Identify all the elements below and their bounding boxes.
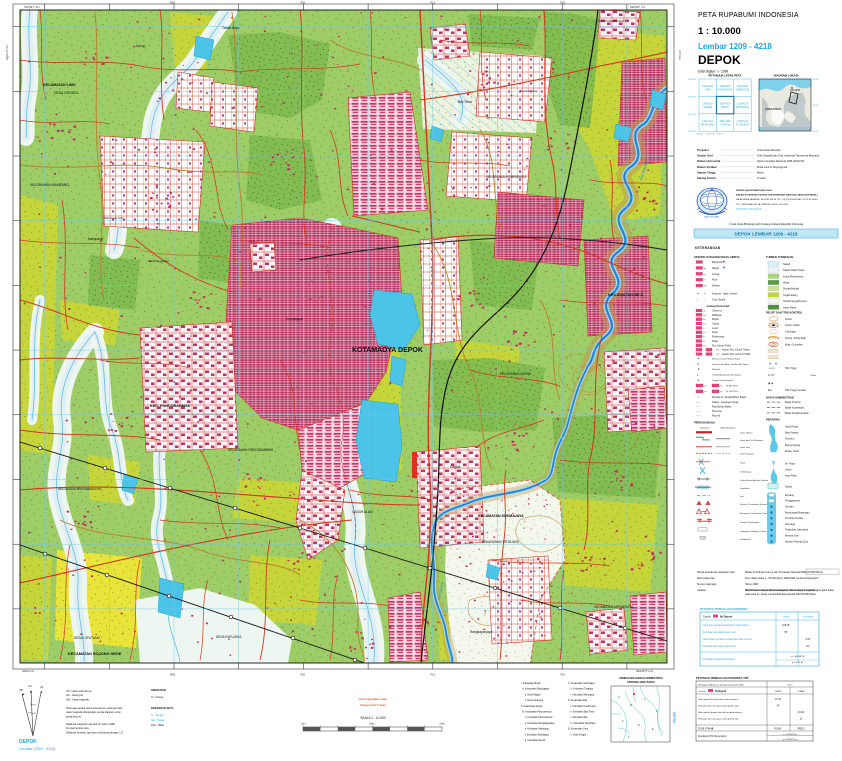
svg-text:—·—: —·—: [696, 401, 702, 404]
svg-text:D. Kecamatan Beji: D. Kecamatan Beji: [568, 699, 588, 702]
svg-text:Wk: Wk: [703, 315, 706, 317]
svg-text:Curug: Curug: [136, 44, 145, 48]
svg-text:◾: ◾: [697, 368, 700, 371]
svg-text:Ni Depok: Ni Depok: [720, 615, 733, 619]
svg-text:Depokjaya: Depokjaya: [286, 317, 303, 321]
svg-text:702: 702: [560, 1, 565, 5]
svg-text:BATAS ADMINISTRASI: BATAS ADMINISTRASI: [766, 395, 794, 399]
svg-text:Badan Koordinasi Survey dan Pe: Badan Koordinasi Survey dan Pemetaan Nas…: [745, 571, 823, 574]
svg-text:Pelabuhan Samudera: Pelabuhan Samudera: [785, 529, 809, 532]
svg-text:DEPOK: DEPOK: [698, 53, 741, 67]
svg-text:Puskesmas: Puskesmas: [712, 336, 725, 339]
svg-text:Jalan dgn Pal Kilometer: Jalan dgn Pal Kilometer: [740, 439, 763, 442]
svg-text:KETERANGAN: KETERANGAN: [695, 246, 721, 250]
svg-text:Camat: Camat: [712, 323, 719, 326]
svg-text:510497 mU: 510497 mU: [24, 5, 40, 9]
svg-text:pusat peta ini: pusat peta ini: [66, 715, 81, 718]
svg-text:06°15'00": 06°15'00": [688, 79, 697, 81]
svg-text:Pos: Pos: [716, 350, 719, 352]
svg-text:Mamuang Hilir: Mamuang Hilir: [104, 216, 123, 220]
svg-text:KELURAHAN MAMPANG: KELURAHAN MAMPANG: [30, 183, 69, 187]
svg-text:DEPOK LEMBAR 1209 - 4218: DEPOK LEMBAR 1209 - 4218: [734, 232, 798, 237]
svg-text:Tahun 1996: Tahun 1996: [745, 583, 759, 586]
svg-text:c. Kelurahan Pancoranmas: c. Kelurahan Pancoranmas: [521, 716, 553, 719]
svg-text:Kantor Pos, Kantor Telpon: Kantor Pos, Kantor Telpon: [722, 349, 751, 352]
svg-text:Pondok Cina: Pondok Cina: [520, 89, 538, 93]
svg-text:Tambangan: Tambangan: [740, 471, 752, 473]
svg-text:Dermaga: Dermaga: [785, 523, 796, 526]
svg-text:Meter: Meter: [757, 170, 764, 174]
svg-text:06°00': 06°00': [813, 79, 819, 81]
svg-text:Jalan Utama: Jalan Utama: [740, 431, 753, 434]
svg-text:106 48': 106 48': [782, 625, 790, 627]
svg-text:TanahKosong/Rumput: TanahKosong/Rumput: [783, 300, 807, 303]
svg-text:Kantor PLN, Kantor PDAM: Kantor PLN, Kantor PDAM: [722, 353, 750, 356]
svg-text:PETUNJUK PEMBACAAN KOODINAT UT: PETUNJUK PEMBACAAN KOODINAT UTM: [696, 676, 748, 680]
svg-text:1 km: 1 km: [300, 723, 305, 726]
svg-text:Lori: Lori: [740, 495, 744, 498]
svg-text:Hutan: Hutan: [783, 282, 790, 285]
svg-text:Stasiun, Perhentian Kereta Api: Stasiun, Perhentian Kereta Api: [740, 503, 770, 506]
svg-text:KECAMATAN LIMO: KECAMATAN LIMO: [43, 83, 76, 87]
svg-text:Wh: Wh: [704, 286, 707, 288]
svg-text:Ltu: Ltu: [704, 390, 707, 393]
svg-text:106°45' · 106°52'30" · 106: 106°45' · 106°52'30" · 106°56': [697, 134, 724, 136]
svg-text:Perkiraan dari selang satu men: Perkiraan dari selang satu menit: [703, 645, 736, 648]
svg-text:Foto Udara skala 1 : 30.000 ta: Foto Udara skala 1 : 30.000 tahun 1993/1…: [745, 577, 819, 580]
svg-text:TIMUR: TIMUR: [775, 691, 782, 693]
svg-text:x = 0701435 m: x = 0701435 m: [783, 734, 798, 736]
svg-text:— —: — —: [696, 415, 702, 418]
svg-text:DESA RATUJAYA: DESA RATUJAYA: [216, 635, 242, 639]
svg-text:LIMO: LIMO: [705, 90, 711, 92]
svg-text:Grid sebelah kiri dari titik t: Grid sebelah kiri dari titik tersebut te…: [698, 698, 739, 701]
svg-text:Pipa Air: Pipa Air: [712, 415, 720, 418]
svg-text:CIMANGGIS: CIMANGGIS: [736, 89, 750, 92]
svg-text:Kampungsahan: Kampungsahan: [148, 259, 169, 263]
svg-text:UG : Utara grid: UG : Utara grid: [66, 694, 83, 697]
svg-text:Kontur: Kontur: [785, 318, 792, 321]
svg-text:Transverse Mercator: Transverse Mercator: [757, 148, 781, 152]
svg-text:10 m: 10 m: [788, 685, 793, 687]
svg-text:701: 701: [430, 1, 435, 5]
svg-text:1209-4216: 1209-4216: [737, 121, 749, 123]
svg-text:Kebun/Perkebunan: Kebun/Perkebunan: [783, 275, 804, 278]
svg-text:UM : Utara magnetik: UM : Utara magnetik: [66, 698, 90, 701]
svg-text:06°15'00": 06°15'00": [688, 114, 697, 116]
svg-text:Batas Desa/Kelurahan: Batas Desa/Kelurahan: [785, 412, 810, 415]
svg-text:▣ ◉: ▣ ◉: [768, 382, 774, 385]
svg-text:✝: ✝: [704, 293, 706, 296]
svg-text:utara magnetik ditunjukkan sec: utara magnetik ditunjukkan secara diagra…: [66, 711, 121, 714]
svg-text:A. Kecamatan Bojonggede: A. Kecamatan Bojonggede: [521, 688, 550, 691]
svg-text:KEL PONDOKCINA: KEL PONDOKCINA: [598, 19, 625, 23]
svg-text:Tempat/Bangunan Bersejarah: Tempat/Bangunan Bersejarah: [712, 374, 742, 377]
svg-text:Selang Kontur: Selang Kontur: [697, 176, 717, 180]
svg-text:PB212: PB212: [798, 729, 806, 731]
svg-text:Jalan Kereta Api dan Stasiun: Jalan Kereta Api dan Stasiun: [740, 479, 769, 482]
svg-text:Δᵀ Δᴾ: Δᵀ Δᴾ: [768, 373, 774, 377]
svg-text:Gardulistrik: Gardulistrik: [740, 538, 752, 541]
svg-text:KELURAHAN PANCORANMAS: KELURAHAN PANCORANMAS: [228, 448, 273, 452]
svg-text:Terusan: Terusan: [785, 506, 794, 509]
svg-text:Bupati: Bupati: [712, 318, 719, 321]
svg-text:Arah Aliran: Arah Aliran: [785, 475, 797, 478]
svg-text:JAWA BARAT: JAWA BARAT: [765, 108, 782, 111]
svg-text:DEPOK: DEPOK: [721, 107, 730, 109]
svg-text:KELURAHAN BANJARWALUYA: KELURAHAN BANJARWALUYA: [58, 487, 101, 491]
svg-text:Ci : Sungai: Ci : Sungai: [151, 714, 164, 717]
svg-text:i. Kelurahan Mekarjaya: i. Kelurahan Mekarjaya: [568, 693, 595, 696]
svg-text:Koordinat geografi titik terse: Koordinat geografi titik tersebut: [703, 658, 735, 661]
svg-text:DEPOK: DEPOK: [672, 712, 676, 724]
svg-text:Pu: Pu: [703, 337, 705, 339]
svg-text:1209-4215: 1209-4215: [720, 121, 732, 123]
svg-text:6 23': 6 23': [806, 639, 811, 641]
svg-text:j. Kelurahan Kemirimuka: j. Kelurahan Kemirimuka: [568, 705, 596, 708]
svg-text:▲: ▲: [697, 379, 700, 382]
svg-text:Gu: Gu: [703, 311, 706, 313]
svg-text:TG.SELATAN: TG.SELATAN: [736, 123, 750, 126]
svg-text:CITAYAM: CITAYAM: [720, 123, 730, 126]
svg-text:f. Kelurahan Depokjaya: f. Kelurahan Depokjaya: [521, 733, 549, 736]
svg-text:699: 699: [170, 1, 175, 5]
svg-text:Menara Air, Tangki Bahan Bakar: Menara Air, Tangki Bahan Bakar: [712, 396, 746, 399]
svg-text:Diperkeras: Diperkeras: [700, 426, 710, 429]
svg-text:Deklinasi magnetik rata-rata 1: Deklinasi magnetik rata-rata 12° tahun 1…: [66, 723, 115, 726]
svg-text:Kontur Indeks: Kontur Indeks: [785, 324, 801, 327]
svg-text:PERAIRAN: PERAIRAN: [766, 417, 780, 421]
svg-text:Cekungan: Cekungan: [785, 331, 797, 334]
svg-text:Hubungan antara utara sebenarn: Hubungan antara utara sebenarnya, utara …: [66, 707, 123, 710]
svg-text:07 04: 07 04: [775, 698, 782, 701]
svg-text:Muka Laut di Tanjungpriok: Muka Laut di Tanjungpriok: [757, 165, 788, 169]
svg-text:0 km: 0 km: [369, 723, 374, 726]
svg-text:Datum Geodesi Nasional 1995 (D: Datum Geodesi Nasional 1995 (DGN-95): [757, 159, 804, 163]
svg-text:1209-4221: 1209-4221: [702, 86, 714, 88]
svg-text:Bangunan: Bangunan: [712, 261, 724, 264]
svg-text:Lembar 1209 - 4218: Lembar 1209 - 4218: [698, 42, 772, 51]
svg-text:Cina, Budha: Cina, Budha: [712, 298, 726, 301]
svg-text:Sumber Gas Alam, Sumber Air Pa: Sumber Gas Alam, Sumber Air Panas: [712, 363, 750, 366]
svg-text:RELIEF DAN TITIK KONTROL: RELIEF DAN TITIK KONTROL: [766, 311, 803, 315]
svg-text:Tidak Diperkeras: Tidak Diperkeras: [720, 426, 736, 429]
svg-text:PETUNJUK LETAK PETA: PETUNJUK LETAK PETA: [709, 74, 742, 78]
svg-text:Hutan Rawa: Hutan Rawa: [783, 306, 797, 309]
svg-text:∆ 62,3: ∆ 62,3: [769, 367, 776, 370]
svg-text:a. Desa Rajaya: a. Desa Rajaya: [521, 694, 541, 696]
svg-text:Situ : Danau: Situ : Danau: [151, 719, 165, 722]
svg-text:Penggaraman: Penggaraman: [785, 500, 801, 503]
svg-text:Kawat - Tegangan Tinggi: Kawat - Tegangan Tinggi: [712, 401, 739, 404]
svg-text:UM: UM: [19, 689, 23, 692]
svg-text:D: D: [638, 724, 640, 727]
svg-text:www.bakosurtanal.go.id: www.bakosurtanal.go.id: [736, 207, 762, 210]
svg-text:Satuan Tinggi: Satuan Tinggi: [697, 170, 716, 174]
svg-text:06°00': 06°00': [813, 131, 819, 133]
svg-text:pada peta ini, harap memberita: pada peta ini, harap memberitahukan kepa…: [745, 593, 817, 596]
svg-text:Pura: Pura: [712, 279, 718, 282]
svg-text:9264 mU: 9264 mU: [22, 669, 34, 673]
svg-text:Koordinat UTM titik tersebut: Koordinat UTM titik tersebut: [698, 735, 727, 738]
svg-text:KEC. PANCORANMAS: KEC. PANCORANMAS: [150, 404, 191, 408]
svg-text:Dikompilasi dari: Dikompilasi dari: [697, 577, 715, 580]
svg-text:Jembatan: Jembatan: [740, 487, 750, 490]
svg-text:Garis tinggi dalam meter: Garis tinggi dalam meter: [359, 697, 387, 701]
svg-text:Grid sebelah bawah dari titik: Grid sebelah bawah dari titik tersebut t…: [698, 711, 743, 714]
svg-text:Beting Karang: Beting Karang: [785, 444, 801, 447]
svg-text:Air Terjun: Air Terjun: [785, 462, 796, 465]
svg-text:Bendungan/Empangan: Bendungan/Empangan: [785, 511, 810, 514]
svg-text:y = 9262125 m: y = 9262125 m: [783, 739, 798, 741]
svg-text:Deklinasi tersebut tiap tahun: Deklinasi tersebut tiap tahun berkurang …: [66, 731, 124, 734]
svg-text:Menara, Kantor Bahan Bakar: Menara, Kantor Bahan Bakar: [712, 357, 741, 360]
svg-text:Jeram: Jeram: [785, 469, 792, 472]
svg-text:Batas Kotamadya: Batas Kotamadya: [785, 407, 805, 410]
svg-text:Titian: Titian: [740, 461, 746, 464]
svg-text:KOTAMADYA DEPOK: KOTAMADYA DEPOK: [352, 347, 423, 354]
svg-text:Psar : Balai: Psar : Balai: [151, 724, 164, 727]
svg-text:Tempat yang menarik: Tempat yang menarik: [712, 379, 734, 382]
svg-text:Contoh: Contoh: [703, 616, 711, 619]
svg-text:Masjid: Masjid: [712, 267, 720, 270]
svg-text:Sekolah: Sekolah: [712, 369, 721, 371]
svg-text:Tegal/Ladang: Tegal/Ladang: [783, 294, 798, 297]
svg-text:Garis bujur pertama sebelah ki: Garis bujur pertama sebelah kiri titik t…: [703, 624, 749, 627]
svg-text:Ci : Cisang: Ci : Cisang: [151, 696, 164, 699]
svg-text:Perkiraan dari selang satu men: Perkiraan dari selang satu menit: [703, 631, 736, 634]
svg-text:SELATAN: SELATAN: [803, 616, 813, 619]
svg-text:Dibuat dicetak dan diedarkan o: Dibuat dicetak dan diedarkan oleh: [697, 571, 735, 574]
svg-text:PONDOKCINA: PONDOKCINA: [717, 89, 733, 92]
svg-text:x = 106 48' 55": x = 106 48' 55": [791, 656, 806, 658]
svg-text:Titik Tinggi: Titik Tinggi: [785, 367, 797, 370]
svg-text:6gp174 mT: 6gp174 mT: [5, 45, 9, 60]
svg-text:Sistem Grid: Sistem Grid: [697, 154, 713, 158]
svg-text:n. Desa Grogol: n. Desa Grogol: [568, 733, 586, 736]
svg-text:© Hak Cipta (Bindung) oleh Und: © Hak Cipta (Bindung) oleh Undang-Undang…: [729, 222, 804, 226]
svg-text:699: 699: [170, 673, 175, 677]
svg-text:Gedung Pemerintah: Gedung Pemerintah: [707, 305, 730, 308]
svg-text:US : Utara sebenarnya: US : Utara sebenarnya: [66, 690, 92, 693]
svg-text:Gubernur: Gubernur: [712, 310, 722, 313]
svg-text:1209-4224: 1209-4224: [737, 86, 749, 88]
svg-text:Stasiun Pasang Surut: Stasiun Pasang Surut: [785, 540, 808, 543]
svg-text:administrasi nasional dan inte: administrasi nasional dan internasional.…: [745, 589, 816, 592]
svg-text:Jalan Lain: Jalan Lain: [740, 447, 751, 449]
svg-text:Muara, Delta: Muara, Delta: [785, 450, 799, 453]
svg-text:— —: — —: [696, 405, 702, 408]
svg-text:PEMBAGIAN DAERAH ADMINISTRASI: PEMBAGIAN DAERAH ADMINISTRASI: [619, 677, 663, 680]
svg-text:Lapangan Terbang, Perintis: Lapangan Terbang, Perintis: [740, 530, 768, 533]
svg-text:Pln: Pln: [716, 354, 719, 356]
svg-text:UG: UG: [28, 685, 32, 688]
svg-text:Batu Karang: Batu Karang: [785, 432, 799, 435]
svg-text:I. Kabupaten Bogor: I. Kabupaten Bogor: [521, 682, 541, 685]
svg-text:Datum Vertikal: Datum Vertikal: [697, 165, 717, 169]
svg-text:Survey Lapangan: Survey Lapangan: [697, 583, 717, 586]
svg-text:Tebing, Tebing Batu: Tebing, Tebing Batu: [785, 337, 807, 340]
svg-text:KECAMATAN MEKARJAYA: KECAMATAN MEKARJAYA: [594, 605, 634, 609]
svg-text:9264077 mU: 9264077 mU: [636, 669, 653, 673]
svg-text:Pr: Pr: [704, 280, 706, 282]
svg-text:Sawah Tadah Hujan: Sawah Tadah Hujan: [783, 269, 805, 272]
svg-text:TIMUR: TIMUR: [783, 617, 790, 619]
svg-text:KELURAHAN KEMIRIMUKA: KELURAHAN KEMIRIMUKA: [486, 175, 527, 179]
svg-text:DESA GROGOL: DESA GROGOL: [54, 91, 79, 95]
svg-text:PR.BOJONG: PR.BOJONG: [701, 124, 715, 126]
svg-text:Selang kontur 5 meter: Selang kontur 5 meter: [360, 703, 386, 707]
svg-text:Tanda: Tanda: [810, 375, 817, 377]
svg-text:Pasar: Pasar: [712, 340, 718, 343]
svg-text:C: C: [656, 710, 658, 713]
svg-text:b. Desa Cipayung: b. Desa Cipayung: [521, 700, 544, 702]
svg-text:06°15'00": 06°15'00": [688, 131, 697, 133]
svg-text:Danau: Danau: [785, 485, 793, 488]
svg-text:Terumbu: Terumbu: [785, 438, 795, 441]
svg-text:PS143: PS143: [775, 729, 783, 731]
svg-text:h. Kelurahan Tirtajaya: h. Kelurahan Tirtajaya: [568, 688, 594, 691]
svg-text:Gereja: Gereja: [712, 273, 720, 276]
svg-text:Titik Tinggi Geodesi: Titik Tinggi Geodesi: [785, 389, 806, 392]
svg-text:700: 700: [300, 673, 305, 677]
svg-text:Depok: Depok: [450, 465, 461, 469]
svg-text:Cm: Cm: [703, 324, 706, 326]
svg-text:C. Kecamatan Sukmajaya: C. Kecamatan Sukmajaya: [568, 682, 595, 685]
svg-text:55": 55": [784, 632, 788, 634]
svg-text:KECAMATAN BOJONG GEDE: KECAMATAN BOJONG GEDE: [68, 652, 122, 656]
svg-text:Beji Timur: Beji Timur: [458, 100, 473, 104]
svg-text:II. Kotamadya Depok: II. Kotamadya Depok: [521, 705, 543, 708]
svg-text:PROPINSI JAWA BARAT: PROPINSI JAWA BARAT: [627, 681, 655, 684]
svg-text:Desa: Desa: [712, 331, 718, 334]
svg-text:JAKARTA: JAKARTA: [790, 89, 801, 92]
svg-text:1 : 10.000: 1 : 10.000: [698, 26, 741, 37]
svg-text:US: US: [40, 686, 44, 689]
svg-text:KELURAHAN TIRTAJAYA: KELURAHAN TIRTAJAYA: [482, 540, 520, 544]
svg-text:1209-4218: 1209-4218: [720, 104, 732, 106]
svg-text:TUMBUH TUMBUHAN: TUMBUH TUMBUHAN: [766, 255, 793, 259]
svg-text:06°00': 06°00': [813, 105, 819, 107]
svg-text:Rangkapanjaya: Rangkapanjaya: [470, 630, 492, 634]
svg-text:Empang: Empang: [785, 494, 795, 497]
svg-text:Ms: Ms: [704, 268, 707, 270]
svg-text:PLTN, PLTG: PLTN, PLTG: [726, 391, 738, 393]
svg-text:g. Kelurahan Depok: g. Kelurahan Depok: [521, 739, 546, 742]
svg-text:702: 702: [560, 673, 565, 677]
svg-text:KESAMAAN ARTI :: KESAMAAN ARTI :: [151, 706, 174, 710]
svg-text:KECAMATAN BEJI: KECAMATAN BEJI: [608, 292, 643, 297]
svg-text:DIAGRAM LOKASI: DIAGRAM LOKASI: [774, 74, 799, 78]
svg-text:Pipa Bahan Bakar: Pipa Bahan Bakar: [712, 405, 731, 408]
svg-text:DESA CIPUTUNG: DESA CIPUTUNG: [74, 636, 101, 640]
svg-text:BADAN KOORDINASI SURVEI DAN PE: BADAN KOORDINASI SURVEI DAN PEMETAAN NAS…: [736, 194, 818, 197]
svg-text:Perkiraan dari satu garis skal: Perkiraan dari satu garis skala grid ke …: [698, 705, 739, 708]
svg-text:Tanah Baru: Tanah Baru: [222, 26, 239, 30]
svg-text:d. Kelurahan Rangkapanjaya: d. Kelurahan Rangkapanjaya: [521, 722, 555, 725]
svg-text:1209-4214: 1209-4214: [702, 121, 714, 123]
svg-text:SINGKATAN: SINGKATAN: [151, 688, 166, 692]
svg-text:Pipa Gas: Pipa Gas: [712, 410, 723, 413]
svg-text:DIBUAT DAN DITERBITKAN OLEH :: DIBUAT DAN DITERBITKAN OLEH :: [736, 189, 773, 192]
svg-text:UTARA: UTARA: [798, 690, 805, 693]
svg-text:Proyeksi: Proyeksi: [697, 148, 709, 152]
svg-text:1209-4223: 1209-4223: [720, 86, 732, 88]
svg-text:Lurah: Lurah: [712, 327, 719, 330]
svg-text:PETA RUPABUMI INDONESIA: PETA RUPABUMI INDONESIA: [698, 12, 799, 19]
svg-text:Ni Depok: Ni Depok: [715, 689, 727, 693]
svg-text:Wihara: Wihara: [712, 285, 720, 288]
svg-text:Garis lintang pertama sebelah: Garis lintang pertama sebelah atas titik…: [703, 638, 752, 641]
svg-text:Catatan: Catatan: [697, 589, 706, 592]
svg-text:Bukit, Gundukan: Bukit, Gundukan: [785, 343, 803, 346]
svg-text:Kuburan : Islam, Kristen: Kuburan : Islam, Kristen: [712, 293, 738, 296]
svg-text:1209-4217: 1209-4217: [702, 104, 714, 106]
svg-text:di pusat lembar peta: di pusat lembar peta: [66, 727, 89, 730]
svg-text:770 mT: 770 mT: [678, 50, 682, 60]
svg-text:PLTA, PLTD: PLTA, PLTD: [726, 384, 738, 387]
svg-text:Lembar 1209 - 4218: Lembar 1209 - 4218: [19, 746, 56, 751]
svg-text:Ds: Ds: [703, 332, 705, 334]
svg-text:GEDUNG DAN BANGUNAN LAINNYA: GEDUNG DAN BANGUNAN LAINNYA: [694, 255, 740, 259]
svg-text:y = 6 23' 51": y = 6 23' 51": [792, 662, 804, 664]
svg-text:Perkiraan dari satu garis skal: Perkiraan dari satu garis skala grid ke …: [698, 718, 739, 721]
svg-text:Ps: Ps: [703, 341, 705, 343]
svg-text:JALAN RAYA JAKARTA - BOGOR KM: JALAN RAYA JAKARTA - BOGOR KM 46 TLP : (…: [736, 198, 818, 201]
svg-text:BAKOSURTANAL: BAKOSURTANAL: [704, 216, 719, 219]
svg-text:— —: — —: [696, 410, 702, 413]
svg-text:51": 51": [806, 646, 810, 648]
svg-text:Garis Pantai: Garis Pantai: [785, 425, 799, 428]
svg-text:Contoh: Contoh: [698, 690, 706, 693]
svg-text:PERHUBUNGAN: PERHUBUNGAN: [694, 421, 715, 425]
svg-text:Grid Geografi dan Grid Univers: Grid Geografi dan Grid Universal Transve…: [757, 154, 819, 158]
svg-text:SKALA 1 : 10.000: SKALA 1 : 10.000: [360, 716, 385, 720]
svg-text:KELURAHAN DEPOK: KELURAHAN DEPOK: [500, 372, 532, 376]
svg-text:k. Kelurahan Beji Timur: k. Kelurahan Beji Timur: [568, 711, 595, 714]
svg-text:5 meter: 5 meter: [757, 176, 766, 180]
svg-text:Pos, Kantor Polisi: Pos, Kantor Polisi: [712, 344, 731, 347]
svg-text:E. Kecamatan Limo: E. Kecamatan Limo: [568, 728, 589, 731]
svg-text:e. Kelurahan Mampang: e. Kelurahan Mampang: [521, 728, 549, 731]
svg-text:06°15'00": 06°15'00": [688, 96, 697, 98]
svg-text:520497 mT: 520497 mT: [630, 5, 645, 9]
svg-text:Jalan Setapak: Jalan Setapak: [740, 452, 755, 455]
svg-text:SUKMAJAYA: SUKMAJAYA: [736, 106, 750, 109]
svg-text:Tempat Pendaratan: Tempat Pendaratan: [740, 521, 760, 524]
svg-text:2 km: 2 km: [439, 723, 444, 726]
svg-text:PETUNJUK PEMBACAAN KOORDINAT: PETUNJUK PEMBACAAN KOORDINAT: [700, 607, 748, 611]
svg-text:Sawah: Sawah: [783, 263, 791, 266]
svg-text:CAGAR ALAM: CAGAR ALAM: [352, 510, 373, 514]
svg-text:⚑: ⚑: [697, 293, 699, 296]
svg-text:Sebagai pembahasan pembacaan d: Sebagai pembahasan pembacaan di peta leb…: [698, 684, 745, 687]
svg-text:Menara Suar: Menara Suar: [785, 535, 799, 538]
svg-text:B. Kecamatan Pancoranmas: B. Kecamatan Pancoranmas: [521, 711, 552, 714]
svg-text:TLX : 46305 BAKOST IA CIBINONG: TLX : 46305 BAKOST IA CIBINONG 16911 - B…: [736, 203, 788, 206]
svg-text:Walikota: Walikota: [712, 314, 722, 317]
svg-text:DEPOK: DEPOK: [19, 739, 37, 745]
svg-text:Semak/Belukar: Semak/Belukar: [783, 288, 799, 291]
svg-text:CINERE: CINERE: [703, 107, 712, 109]
svg-text:1209-4219: 1209-4219: [737, 104, 749, 106]
svg-text:Ltu: Ltu: [720, 390, 723, 393]
svg-text:ZONE UTM 48: ZONE UTM 48: [698, 728, 714, 731]
svg-text:700: 700: [300, 1, 305, 5]
svg-text:91 92: 91 92: [798, 711, 805, 714]
svg-text:l. Kelurahan Beji: l. Kelurahan Beji: [568, 716, 588, 719]
svg-text:Batas Propinsi: Batas Propinsi: [785, 401, 801, 404]
